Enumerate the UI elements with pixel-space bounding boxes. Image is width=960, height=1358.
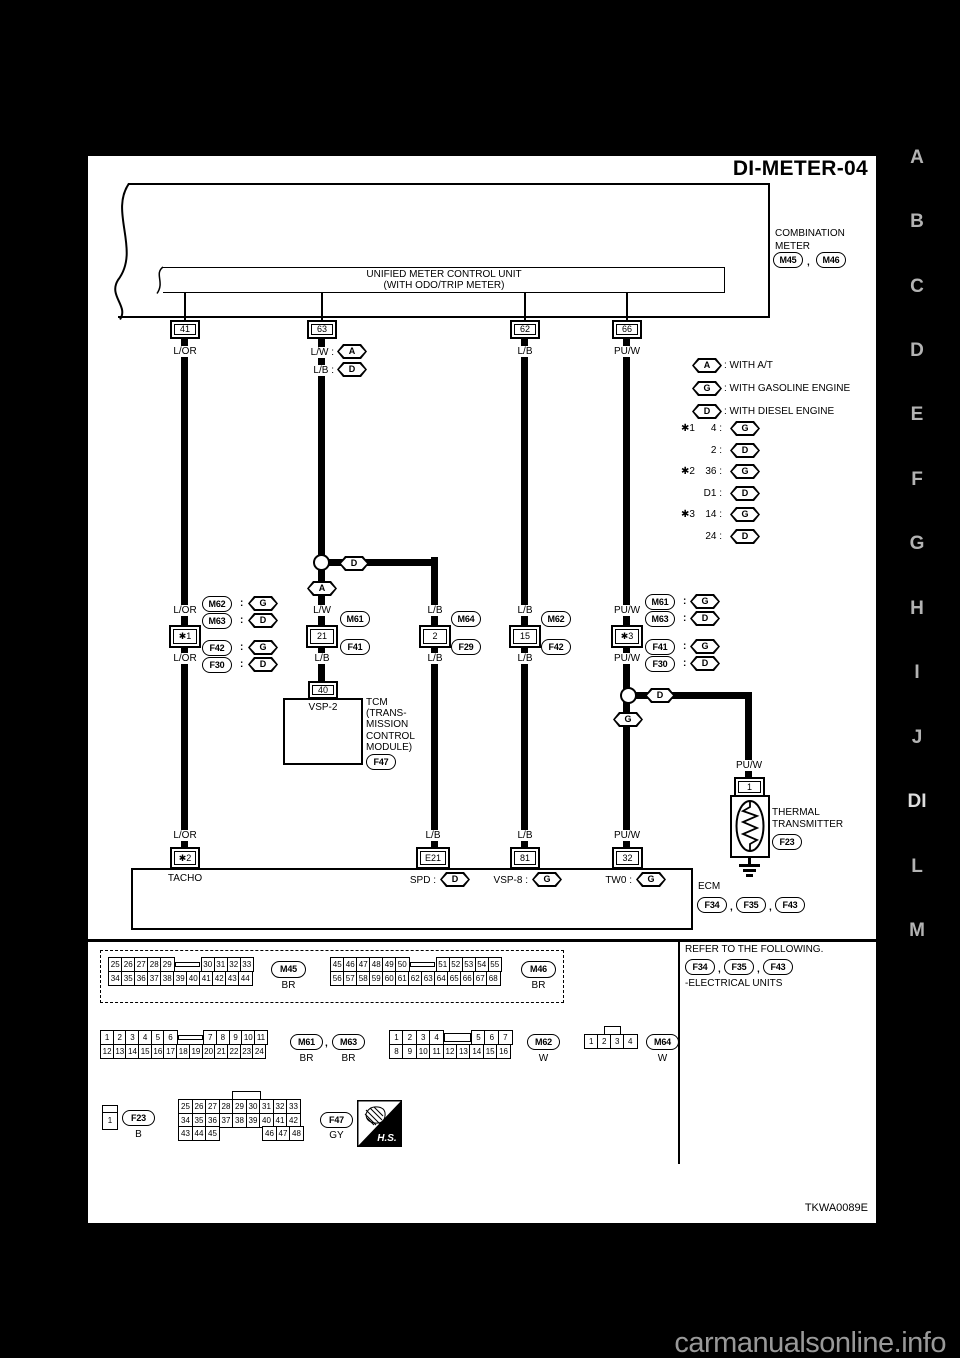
comma: , (807, 258, 810, 268)
star-note-tag: D (730, 486, 760, 501)
connector-ref: F42 (541, 639, 571, 655)
terminal-63: 63 (307, 320, 337, 339)
junction-circle (313, 554, 330, 571)
connector-ref: M63 (645, 611, 675, 627)
star-note-value: D1 : (688, 488, 722, 499)
terminal-62: 62 (510, 320, 540, 339)
hs-view-icon: H.S. (357, 1100, 402, 1147)
ecm-signal-label: TACHO (157, 873, 213, 884)
option-tag: G (636, 872, 666, 887)
wire-color-label: PU/W (605, 830, 649, 841)
connector-ref-m46: M46 (816, 252, 846, 268)
pin-cell: 48 (289, 1126, 304, 1141)
nav-index-e: E (894, 405, 940, 424)
thermal-label-line: TRANSMITTER (772, 819, 843, 831)
connector-color: B (122, 1129, 155, 1140)
pin-row: 1234 (584, 1034, 638, 1049)
connector-ref-f34: F34 (697, 897, 727, 913)
ground-bar (743, 869, 756, 872)
wire-color-label: L/B : (287, 365, 334, 376)
nav-index-c: C (894, 277, 940, 296)
pin-cell: 1 (103, 1113, 117, 1128)
star-note-tag: D (730, 529, 760, 544)
wire-color-label: L/W (300, 605, 344, 616)
thermal-transmitter-label: THERMAL TRANSMITTER (772, 807, 843, 830)
connector-ref-m63: M63 (332, 1034, 365, 1050)
box-edge-stub (118, 316, 130, 318)
star-note-value: 24 : (688, 531, 722, 542)
nav-index-a: A (894, 148, 940, 167)
wire-tacho (181, 339, 188, 849)
ecm-label: ECM (698, 881, 720, 892)
star-note-tag: G (730, 421, 760, 436)
comma: , (730, 903, 733, 913)
connector-ref: F42 (202, 640, 232, 656)
tcm-label-line: MODULE) (366, 742, 415, 753)
colon: : (240, 599, 243, 609)
wire-color-label: L/B (300, 653, 344, 664)
terminal-star2: ✱2 (170, 847, 200, 869)
tcm-label-line: (TRANS- (366, 708, 415, 719)
connector-ref: M63 (202, 613, 232, 629)
star-note-tag: G (730, 464, 760, 479)
thermistor-icon (733, 797, 767, 856)
option-tag-d: D (337, 362, 367, 377)
terminal-40: 40 (308, 681, 338, 699)
option-tag: G (532, 872, 562, 887)
branch-tag-at: A (307, 581, 337, 596)
pin-lead (184, 293, 186, 320)
pin-cell: 44 (238, 971, 253, 986)
wire-color-label: L/B (503, 346, 547, 357)
pin-row: 56575859606162636465666768 (330, 971, 502, 986)
connector-star1: ✱1 (169, 625, 201, 648)
colon: : (683, 614, 686, 624)
option-tag: G (248, 640, 278, 655)
pin-row: 12131415161718192021222324 (100, 1044, 268, 1059)
pin-cell: 24 (252, 1044, 266, 1059)
page-title: DI-METER-04 (640, 157, 868, 181)
connector-ref: M64 (451, 611, 481, 627)
colon: : (240, 643, 243, 653)
option-tag: G (690, 639, 720, 654)
legend-text: : WITH GASOLINE ENGINE (724, 383, 850, 394)
star-note-value: 14 : (688, 509, 722, 520)
option-tag-a: A (337, 344, 367, 359)
connector-ref: M62 (541, 611, 571, 627)
connector-ref: F30 (645, 656, 675, 672)
comma: , (718, 965, 721, 975)
connector-ref-f47: F47 (366, 754, 396, 770)
combination-meter-label: COMBINATION METER (775, 228, 845, 253)
colon: : (240, 616, 243, 626)
wire-color-label: L/B (503, 605, 547, 616)
pinout-m62: 1234567 8910111213141516 (389, 1030, 513, 1059)
ground-icon (748, 856, 751, 864)
connector-ref: M62 (202, 596, 232, 612)
wire-branch-diesel (318, 559, 438, 566)
branch-tag-diesel: D (339, 556, 369, 571)
star-note-value: 2 : (688, 445, 722, 456)
wire-color-label: L/OR (163, 653, 207, 664)
manual-page: DI-METER-04 UNIFIED METER CONTROL UNIT (… (0, 0, 960, 1358)
combination-meter-label-line1: COMBINATION (775, 228, 845, 241)
connector-ref-m64: M64 (646, 1034, 679, 1050)
connector-ref-m61: M61 (290, 1034, 323, 1050)
wire-color-label: PU/W (727, 760, 771, 771)
connector-ref: F41 (645, 639, 675, 655)
option-tag: D (690, 656, 720, 671)
pin-lead (524, 293, 526, 320)
torn-edge-left (106, 182, 136, 321)
wire-color-label: L/OR (163, 830, 207, 841)
option-tag: D (440, 872, 470, 887)
connector-color: W (646, 1053, 679, 1064)
wire-color-label: L/W : (287, 347, 334, 358)
option-tag: D (248, 613, 278, 628)
wire-color-label: L/B (503, 653, 547, 664)
comma: , (769, 903, 772, 913)
comma: , (757, 965, 760, 975)
electrical-units-note: -ELECTRICAL UNITS (685, 978, 782, 989)
nav-index-h: H (894, 599, 940, 618)
option-tag: G (690, 594, 720, 609)
connector-gap (219, 1126, 264, 1141)
pinout-f47: 252627282930313233 343536373839404142 43… (178, 1099, 304, 1141)
combination-meter-box (128, 183, 770, 318)
tcm-pin-name: VSP-2 (285, 702, 361, 713)
star-note-tag: D (730, 443, 760, 458)
junction-circle (620, 687, 637, 704)
legend-tag-g: G (692, 381, 722, 396)
nav-index-d: D (894, 341, 940, 360)
wire-color-label: L/B (413, 605, 457, 616)
star-note-value: 4 : (688, 423, 722, 434)
terminal-66: 66 (612, 320, 642, 339)
branch-tag-gas: G (613, 712, 643, 727)
connector-ref-f43: F43 (763, 959, 793, 975)
legend-tag-a: A (692, 358, 722, 373)
pin-lead (626, 293, 628, 320)
unit-title-line1: UNIFIED METER CONTROL UNIT (163, 269, 725, 280)
connector-color: BR (290, 1053, 323, 1064)
pinout-m46: 4546474849505152535455 56575859606162636… (330, 957, 502, 986)
pin-cell: 16 (496, 1044, 511, 1059)
pin-lead (321, 293, 323, 320)
pinout-m61-m63: 1234567891011 12131415161718192021222324 (100, 1030, 268, 1059)
colon: : (683, 659, 686, 669)
separator-line (88, 939, 876, 942)
wire-color-label: L/OR (163, 346, 207, 357)
terminal-41: 41 (170, 320, 200, 339)
unit-title: UNIFIED METER CONTROL UNIT (WITH ODO/TRI… (163, 269, 725, 291)
connector-ref-f23: F23 (772, 834, 802, 850)
nav-index-j: J (894, 728, 940, 747)
diagram-code: TKWA0089E (756, 1203, 868, 1214)
option-tag: G (248, 596, 278, 611)
wire-color-label: L/B (413, 653, 457, 664)
ecm-signal-label: SPD : (396, 875, 436, 886)
connector-ref: F29 (451, 639, 481, 655)
wire-color-label: L/OR (163, 605, 207, 616)
colon: : (683, 642, 686, 652)
ground-bar (746, 874, 753, 877)
pin-row: 8910111213141516 (389, 1044, 513, 1059)
nav-index-m: M (894, 921, 940, 940)
pin-row: 434445464748 (178, 1126, 304, 1141)
terminal-81: 81 (510, 847, 540, 869)
connector-ref: M61 (645, 594, 675, 610)
connector-15: 15 (509, 625, 541, 648)
wire-vsp8 (521, 339, 528, 849)
connector-ref-m46: M46 (521, 961, 556, 978)
pinout-f23: 1 (102, 1105, 118, 1130)
terminal-32: 32 (612, 847, 643, 869)
colon: : (240, 660, 243, 670)
connector-2: 2 (419, 625, 451, 648)
option-tag: D (690, 611, 720, 626)
pin-cell: 4 (623, 1034, 638, 1049)
wire-color-label: PU/W (605, 653, 649, 664)
comma: , (325, 1039, 328, 1049)
nav-index-l: L (894, 857, 940, 876)
connector-ref-f47: F47 (320, 1112, 353, 1128)
connector-color: BR (521, 980, 556, 991)
nav-index-b: B (894, 212, 940, 231)
star-note-value: 36 : (688, 466, 722, 477)
connector-color: BR (271, 980, 306, 991)
legend-text: : WITH A/T (724, 360, 773, 371)
connector-star3: ✱3 (611, 625, 643, 648)
connector-ref-f43: F43 (775, 897, 805, 913)
connector-ref: M61 (340, 611, 370, 627)
connector-21: 21 (306, 625, 338, 648)
connector-ref: F30 (202, 657, 232, 673)
connector-key-slot (103, 1106, 117, 1113)
connector-ref-f35: F35 (724, 959, 754, 975)
connector-color: BR (332, 1053, 365, 1064)
nav-index-g: G (894, 534, 940, 553)
pin-row: 3435363738394041424344 (108, 971, 254, 986)
connector-ref-f34: F34 (685, 959, 715, 975)
ground-bar (739, 864, 760, 867)
nav-index-di-current: DI (894, 792, 940, 811)
tcm-label-line: MISSION (366, 719, 415, 730)
connector-ref-m45: M45 (773, 252, 803, 268)
ecm-signal-label: VSP-8 : (476, 875, 528, 886)
wire-color-label: L/B (503, 830, 547, 841)
thermal-label-line: THERMAL (772, 807, 843, 819)
connector-color: W (527, 1053, 560, 1064)
refer-note: REFER TO THE FOLLOWING. (685, 944, 823, 955)
pin-cell: 68 (486, 971, 501, 986)
terminal-1: 1 (734, 777, 765, 797)
wire-tw0 (623, 339, 630, 849)
connector-ref: F41 (340, 639, 370, 655)
star-note-tag: G (730, 507, 760, 522)
wire-speed-d (431, 557, 438, 849)
tcm-label-line: TCM (366, 697, 415, 708)
pinout-m64: 1234 (584, 1034, 638, 1049)
option-tag: D (248, 657, 278, 672)
branch-tag-diesel: D (645, 688, 675, 703)
site-watermark: carmanualsonline.info (460, 1327, 946, 1358)
nav-index-i: I (894, 663, 940, 682)
terminal-e21: E21 (416, 847, 450, 869)
legend-text: : WITH DIESEL ENGINE (724, 406, 834, 417)
wire-branch-thermal (623, 692, 752, 699)
legend-tag-d: D (692, 404, 722, 419)
connector-color: GY (320, 1130, 353, 1141)
tcm-label-line: CONTROL (366, 731, 415, 742)
connector-ref-f35: F35 (736, 897, 766, 913)
wire-color-label: L/B (411, 830, 455, 841)
connector-ref-m45: M45 (271, 961, 306, 978)
wire-color-label: PU/W (605, 346, 649, 357)
hs-label: H.S. (377, 1133, 396, 1144)
nav-index-f: F (894, 470, 940, 489)
unit-title-line2: (WITH ODO/TRIP METER) (163, 280, 725, 291)
connector-ref-m62: M62 (527, 1034, 560, 1050)
ecm-signal-label: TW0 : (590, 875, 632, 886)
tcm-label: TCM (TRANS- MISSION CONTROL MODULE) (366, 697, 415, 753)
connector-ref-f23: F23 (122, 1110, 155, 1126)
colon: : (683, 597, 686, 607)
wire-color-label: PU/W (605, 605, 649, 616)
pinout-m45: 252627282930313233 343536373839404142434… (108, 957, 254, 986)
